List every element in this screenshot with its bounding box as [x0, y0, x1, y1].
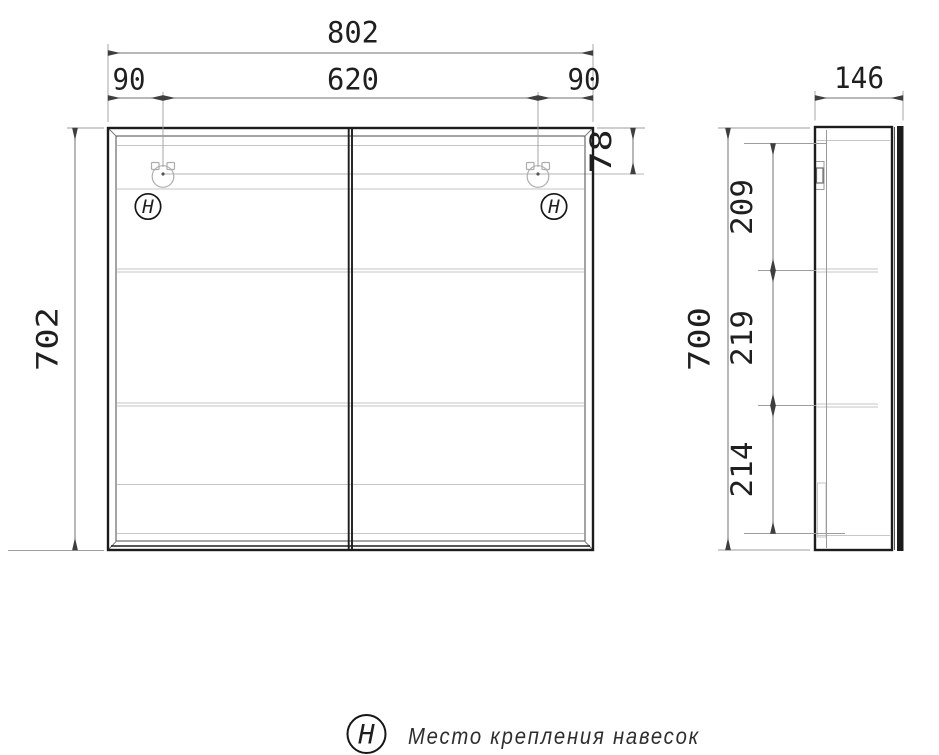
technical-drawing: H H 802 90 620 90 — [0, 0, 939, 755]
side-view — [815, 126, 904, 551]
dim-text-hanger-span: 620 — [327, 63, 379, 97]
front-view-dimensions: 802 90 620 90 702 78 — [8, 16, 645, 551]
front-view-internal-lines — [117, 146, 584, 534]
legend: H Место крепления навесок — [348, 715, 701, 753]
dim-text-depth: 146 — [834, 61, 884, 95]
hanger-symbol-right: H — [541, 194, 566, 219]
dim-text-left-offset: 90 — [113, 63, 146, 97]
dim-text-front-height: 702 — [31, 307, 65, 371]
drawing-sheet: H H 802 90 620 90 — [0, 0, 939, 755]
dim-text-top-section: 209 — [725, 179, 759, 235]
dim-text-side-height: 700 — [683, 307, 717, 371]
legend-text: Место крепления навесок — [408, 723, 700, 749]
front-view: H H — [108, 128, 644, 550]
side-view-internal-lines — [817, 141, 891, 538]
dim-text-right-offset: 90 — [568, 63, 601, 97]
side-mirror-door — [897, 126, 904, 551]
dim-text-middle-section: 219 — [725, 310, 759, 366]
hanger-symbol-letter: H — [547, 196, 560, 218]
dim-text-bottom-section: 214 — [725, 442, 759, 498]
door-divider — [349, 129, 352, 549]
dim-text-total-width: 802 — [327, 16, 379, 50]
side-view-dimensions: 146 700 209 219 214 — [683, 61, 904, 550]
front-frame-outer — [108, 128, 593, 550]
dim-text-hanger-top: 78 — [584, 130, 618, 174]
hanger-symbol-left: H — [135, 194, 160, 219]
hanger-symbol-letter: H — [141, 196, 154, 218]
front-extension-lines — [8, 44, 645, 551]
legend-symbol-letter: H — [357, 720, 375, 751]
front-frame-inner — [116, 136, 585, 541]
front-frame-mitres — [109, 129, 593, 550]
